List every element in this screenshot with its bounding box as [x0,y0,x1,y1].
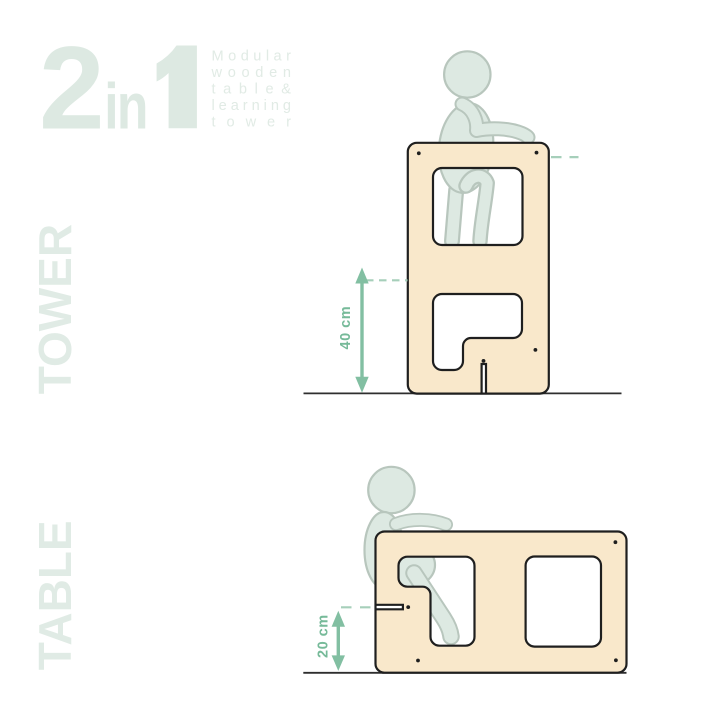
svg-text:TABLE: TABLE [29,520,81,670]
svg-text:in: in [104,71,147,143]
svg-text:20 cm: 20 cm [315,614,331,658]
svg-text:2: 2 [39,22,105,154]
svg-text:TOWER: TOWER [29,224,81,394]
svg-text:40 cm: 40 cm [338,306,354,350]
